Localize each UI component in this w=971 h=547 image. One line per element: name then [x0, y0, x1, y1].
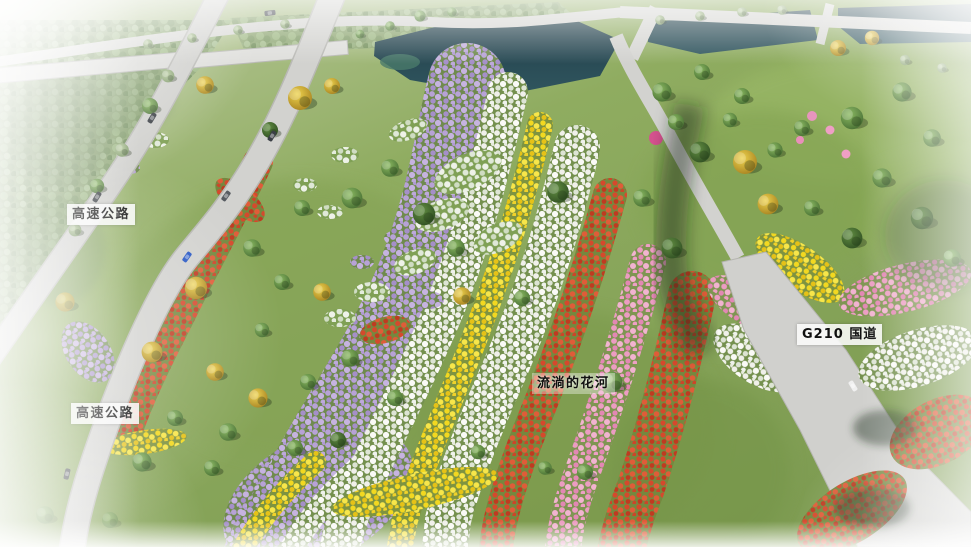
landscape-scene — [0, 0, 971, 547]
aerial-rendering: 高速公路 高速公路 G210 国道 流淌的花河 — [0, 0, 971, 547]
label-expressway-bottom: 高速公路 — [71, 403, 139, 424]
label-expressway-top: 高速公路 — [67, 204, 135, 225]
label-g210-national-road: G210 国道 — [797, 324, 882, 345]
label-flowing-flower-river: 流淌的花河 — [532, 373, 615, 394]
